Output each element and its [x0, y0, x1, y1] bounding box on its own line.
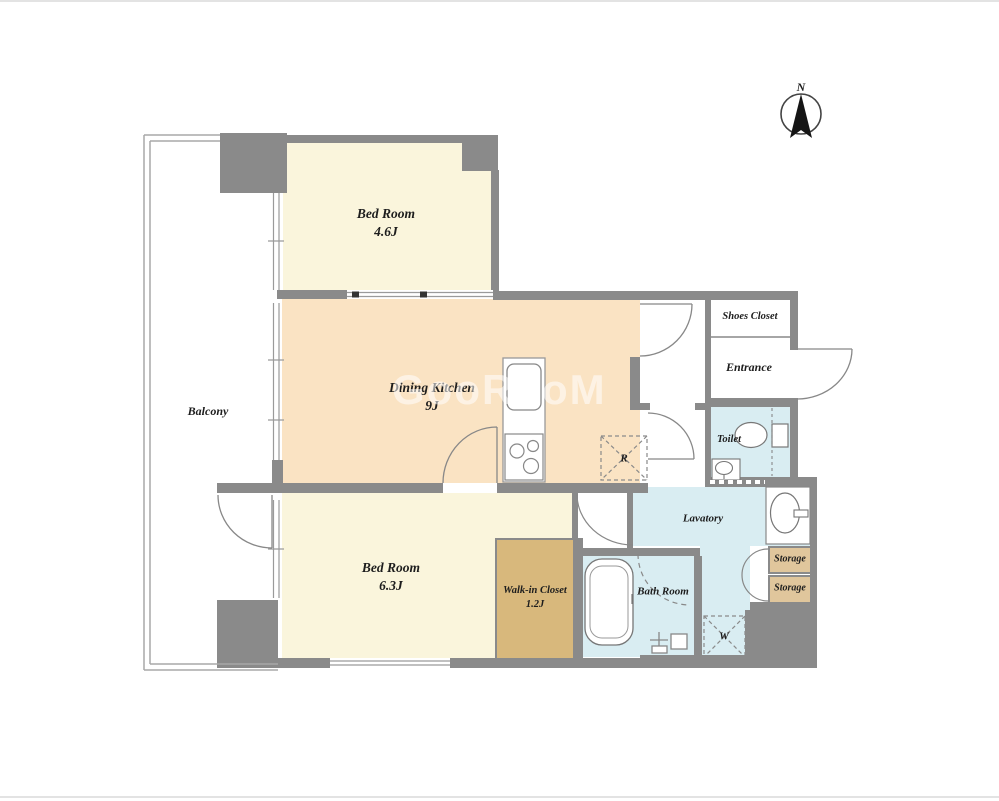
bedroom-bottom-door-arc: [443, 427, 497, 483]
toilet-label: Toilet: [717, 433, 741, 447]
shoes-closet-label: Shoes Closet: [722, 310, 777, 324]
bath-faucet: [650, 632, 687, 653]
sliding-door-handle-right: [420, 292, 427, 298]
refrigerator-label: R: [620, 452, 627, 467]
bath-room-label: Bath Room: [637, 585, 689, 600]
toilet-hand-basin: [716, 462, 733, 475]
room-size: 1.2J: [503, 598, 567, 612]
stove-burner: [510, 444, 524, 458]
room-size: 4.6J: [357, 223, 415, 241]
bath-vestibule-door-arc: [577, 494, 633, 545]
image-border-bottom: [0, 796, 999, 798]
room-name: Walk-in Closet: [503, 585, 567, 596]
compass-icon: [781, 94, 821, 138]
vanity-faucet: [794, 510, 808, 517]
toilet-vestibule-door-arc: [648, 413, 694, 459]
hall-door-arc: [640, 304, 692, 356]
watermark: GooRooM: [392, 366, 607, 414]
stove-burner: [528, 441, 539, 452]
image-border-top: [0, 0, 999, 2]
room-name: Bed Room: [362, 560, 420, 575]
balcony-label: Balcony: [188, 403, 229, 419]
room-name: Bed Room: [357, 206, 415, 221]
bedroom-bottom-window: [268, 500, 284, 598]
storage-door-arc: [742, 549, 768, 601]
bedroom-top-label: Bed Room 4.6J: [357, 205, 415, 241]
walk-in-closet-label: Walk-in Closet 1.2J: [503, 584, 567, 612]
floor-plan: Bed Room 4.6J Dining Kitchen 9J Bed Room…: [0, 0, 999, 801]
stove-burner: [524, 459, 539, 474]
washer-label: W: [719, 630, 729, 645]
balcony-door-arc: [218, 495, 272, 548]
bedroom-bottom-label: Bed Room 6.3J: [362, 559, 420, 595]
toilet-tank: [772, 424, 788, 447]
storage-upper-label: Storage: [774, 552, 806, 566]
south-window-lines: [330, 661, 450, 665]
entrance-door-arc: [797, 349, 852, 399]
entrance-label: Entrance: [726, 359, 772, 375]
bedroom-top-window: [268, 193, 284, 290]
sliding-door-handle-left: [352, 292, 359, 298]
compass-north-label: N: [797, 79, 806, 95]
storage-lower-label: Storage: [774, 581, 806, 595]
room-size: 6.3J: [362, 577, 420, 595]
lavatory-label: Lavatory: [683, 512, 723, 527]
dining-kitchen-window: [268, 303, 284, 460]
stove: [505, 434, 543, 480]
